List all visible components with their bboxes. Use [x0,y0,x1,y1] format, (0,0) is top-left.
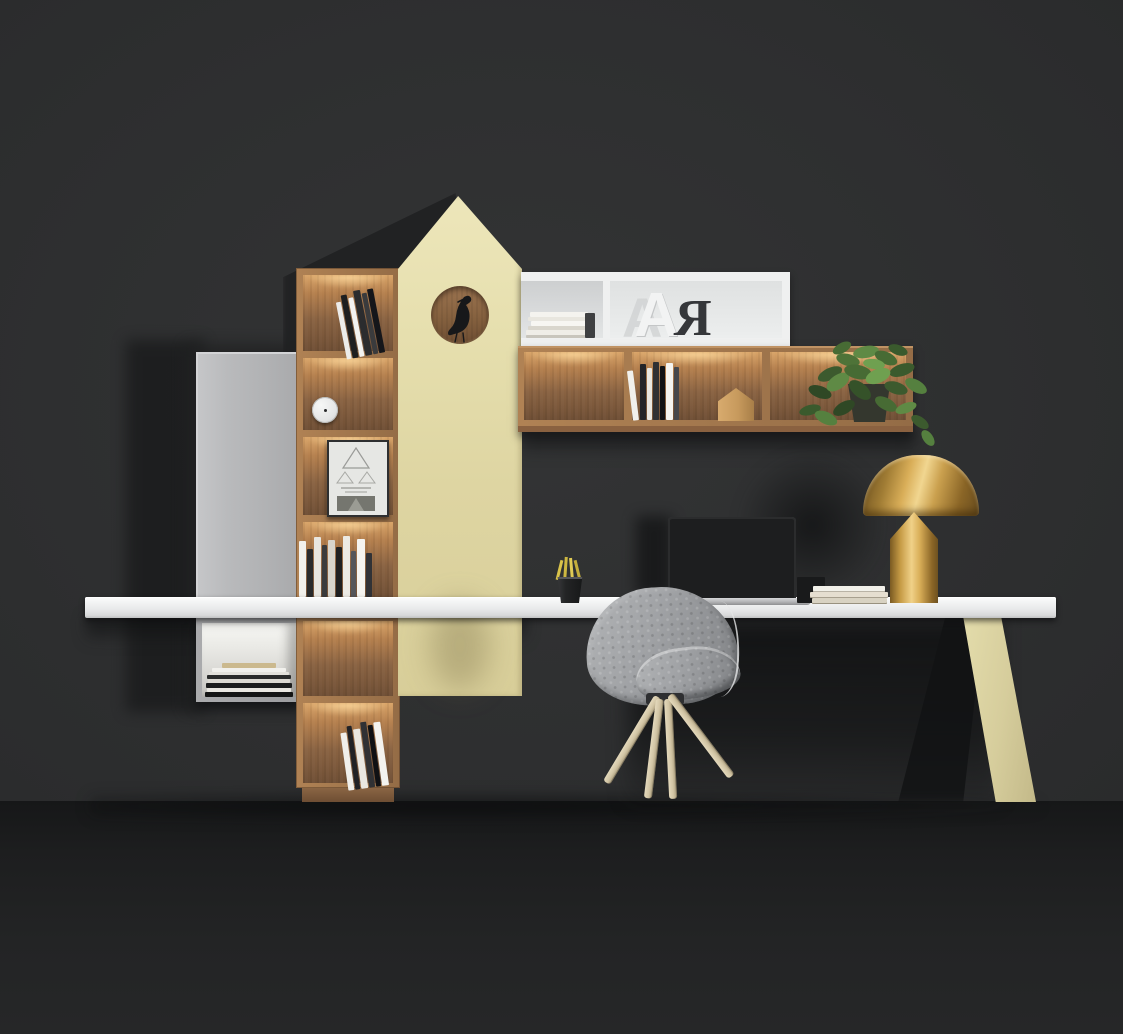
chair-leg-mid-right [664,699,677,799]
book [640,364,646,420]
book [526,335,592,338]
book [299,541,306,597]
decor-letters: A A R [622,284,732,338]
plant [790,330,942,462]
book [357,539,365,597]
white-book-stack [526,308,592,338]
bookend [585,313,595,338]
chair-leg-back-right [667,693,735,779]
magazine-stack [205,663,293,697]
laptop-shadow [636,516,672,596]
desk-book-stack [810,580,888,604]
book [307,549,313,597]
wood-shelf-cell-1 [524,352,624,420]
letter-a: A [634,285,679,338]
book [336,547,342,597]
book [653,362,660,420]
scene: A A R [0,0,1123,1034]
book [660,366,665,420]
book-row-desk-level [299,533,375,597]
clock-center [324,409,327,412]
triangle-art [329,442,383,511]
book-row-bottom [338,713,396,791]
tower-cell-5 [303,621,393,696]
shelf-book-row [633,360,679,420]
lamp-stem [890,512,938,603]
book [351,551,356,597]
book [314,537,321,597]
book [343,536,350,597]
book [328,540,335,597]
floor [0,801,1123,1034]
chair [578,585,748,803]
picture-frame [327,440,389,517]
book [666,363,673,420]
book [322,545,327,597]
book [812,598,887,604]
cabinet-door [196,352,301,603]
bird-figurine [440,294,480,344]
book [366,553,372,597]
book [674,367,679,420]
clock-cutout [431,286,489,344]
magazine [205,692,293,697]
chair-piping [694,599,744,698]
lamp-dome [863,455,979,516]
letter-r-mirrored: R [674,293,712,338]
book [647,368,652,420]
